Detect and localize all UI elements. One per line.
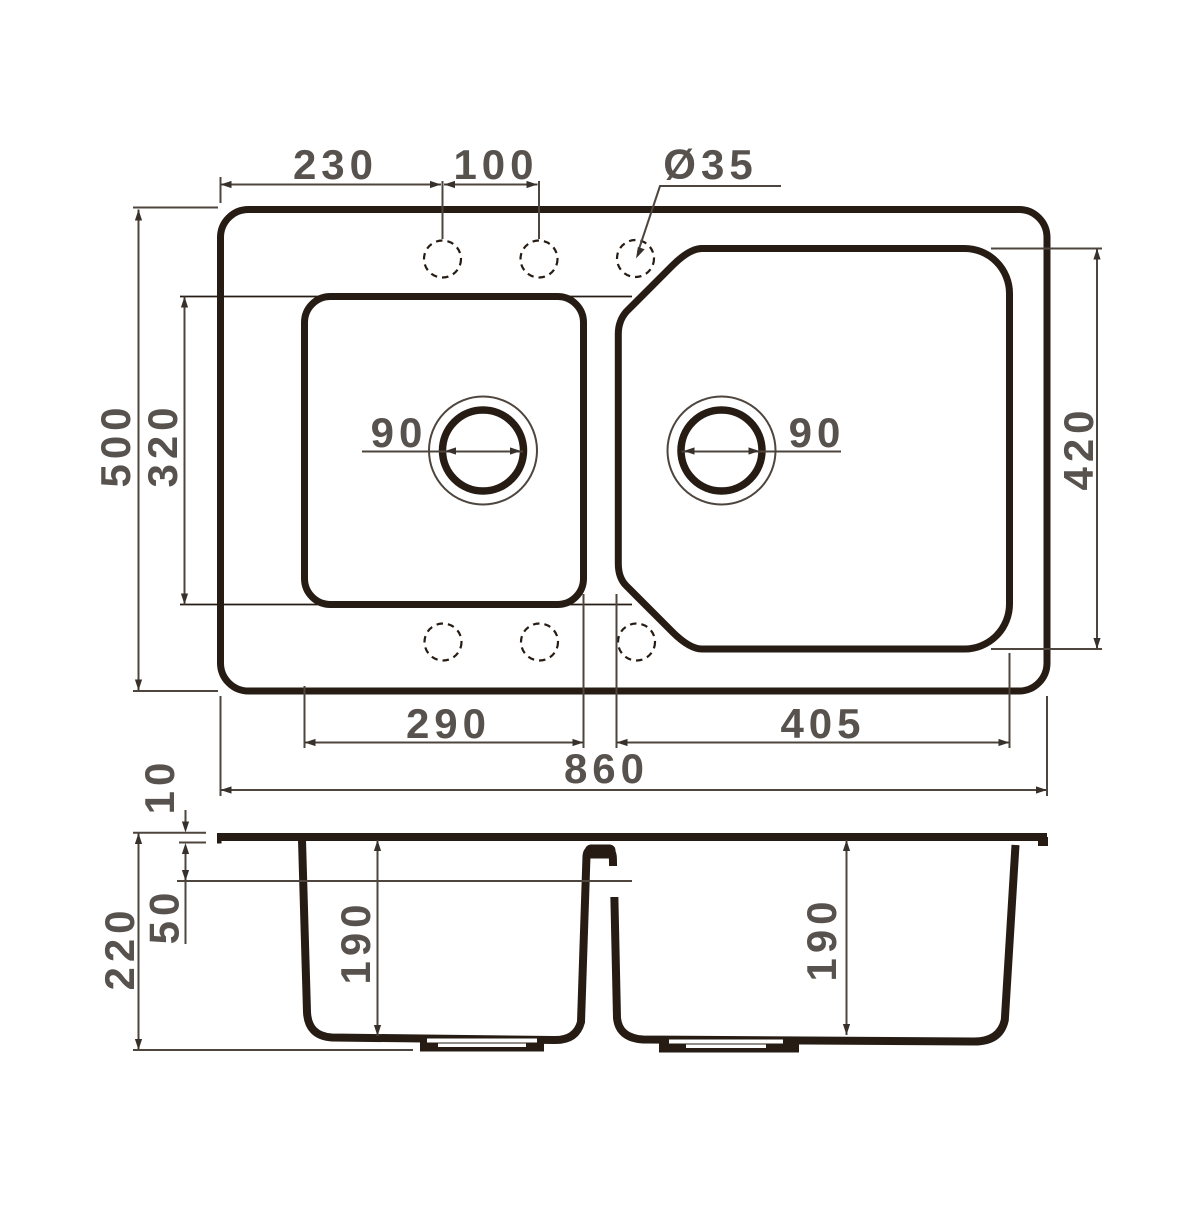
svg-text:90: 90 [371, 409, 428, 456]
svg-text:320: 320 [139, 402, 186, 487]
svg-text:405: 405 [780, 700, 865, 747]
svg-text:100: 100 [453, 141, 538, 188]
svg-text:90: 90 [789, 409, 846, 456]
svg-text:860: 860 [564, 745, 649, 792]
svg-text:10: 10 [136, 758, 183, 815]
svg-text:190: 190 [798, 896, 845, 981]
svg-text:290: 290 [406, 700, 491, 747]
svg-text:420: 420 [1055, 405, 1102, 490]
svg-text:500: 500 [92, 402, 139, 487]
svg-text:230: 230 [293, 141, 378, 188]
svg-text:Ø35: Ø35 [663, 141, 757, 188]
svg-text:190: 190 [332, 899, 379, 984]
svg-text:50: 50 [141, 888, 188, 945]
svg-text:220: 220 [96, 905, 143, 990]
